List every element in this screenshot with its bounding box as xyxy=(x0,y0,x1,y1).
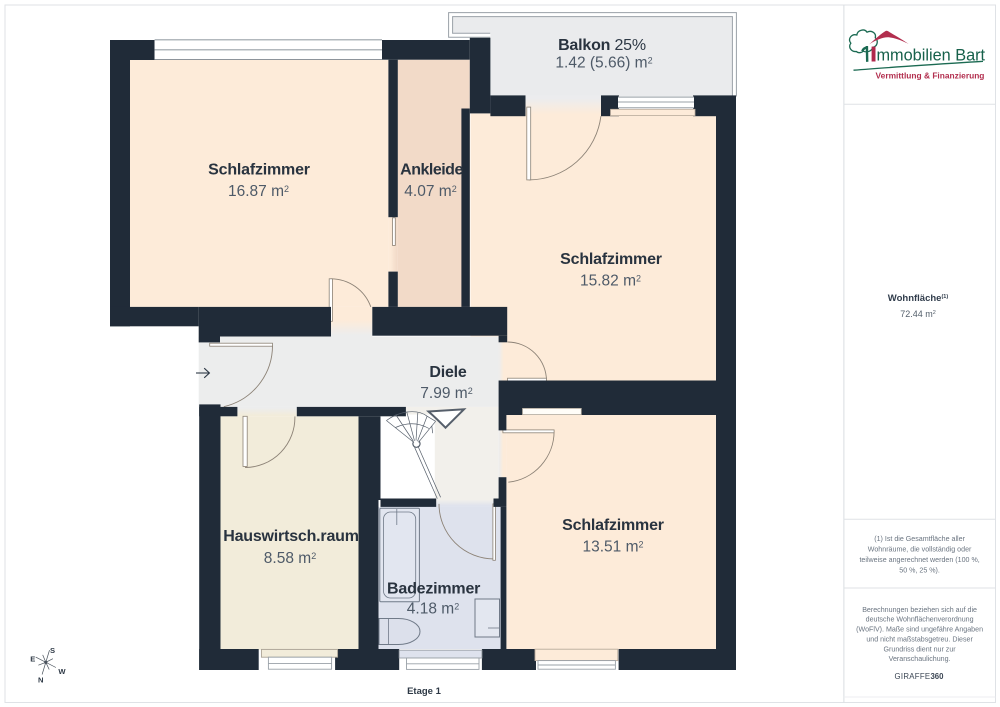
svg-text:Veranschaulichung.: Veranschaulichung. xyxy=(889,655,951,663)
svg-text:72.44 m2: 72.44 m2 xyxy=(900,309,936,319)
svg-text:1.42 (5.66) m2: 1.42 (5.66) m2 xyxy=(555,55,652,72)
svg-text:4.07 m2: 4.07 m2 xyxy=(404,183,456,200)
svg-text:Etage 1: Etage 1 xyxy=(407,686,442,697)
svg-text:8.58 m2: 8.58 m2 xyxy=(264,550,316,567)
svg-text:teilweise angerechnet werden (: teilweise angerechnet werden (100 %, xyxy=(859,556,979,564)
svg-text:Ankleide: Ankleide xyxy=(400,162,463,179)
svg-text:Schlafzimmer: Schlafzimmer xyxy=(208,162,310,179)
svg-text:13.51 m2: 13.51 m2 xyxy=(582,539,643,556)
svg-text:E: E xyxy=(30,655,35,664)
svg-text:4.18 m2: 4.18 m2 xyxy=(407,601,459,618)
svg-text:15.82 m2: 15.82 m2 xyxy=(580,273,641,290)
svg-text:und nicht maßstabsgetreu. Dies: und nicht maßstabsgetreu. Dieser xyxy=(866,636,973,644)
svg-text:Hauswirtsch.raum: Hauswirtsch.raum xyxy=(223,528,359,545)
svg-text:Schlafzimmer: Schlafzimmer xyxy=(560,251,662,268)
svg-text:7.99 m2: 7.99 m2 xyxy=(420,385,472,402)
svg-text:50 %, 25 %).: 50 %, 25 %). xyxy=(899,567,940,575)
svg-text:Badezimmer: Badezimmer xyxy=(387,581,480,598)
svg-text:Schlafzimmer: Schlafzimmer xyxy=(562,517,664,534)
svg-text:Wohnräume, die vollständig ode: Wohnräume, die vollständig oder xyxy=(868,546,972,554)
svg-text:16.87 m2: 16.87 m2 xyxy=(228,183,289,200)
svg-text:N: N xyxy=(38,676,43,685)
svg-text:Vermittlung & Finanzierung: Vermittlung & Finanzierung xyxy=(876,71,985,81)
svg-text:Grundriss dient nur zur: Grundriss dient nur zur xyxy=(884,645,957,653)
svg-text:deutsche Wohnflächenverordnung: deutsche Wohnflächenverordnung xyxy=(866,616,974,624)
svg-text:Berechnungen beziehen sich auf: Berechnungen beziehen sich auf die xyxy=(862,606,977,614)
svg-text:Diele: Diele xyxy=(429,364,467,381)
svg-text:Balkon 25%: Balkon 25% xyxy=(558,37,646,54)
svg-text:(WoFlV). Maße sind ungefähre A: (WoFlV). Maße sind ungefähre Angaben xyxy=(856,626,983,634)
svg-text:GIRAFFE360: GIRAFFE360 xyxy=(895,672,945,681)
svg-text:S: S xyxy=(50,646,55,655)
svg-text:(1) Ist die Gesamtfläche aller: (1) Ist die Gesamtfläche aller xyxy=(874,535,965,543)
svg-text:Wohnfläche(1): Wohnfläche(1) xyxy=(888,293,949,304)
svg-text:W: W xyxy=(58,667,66,676)
